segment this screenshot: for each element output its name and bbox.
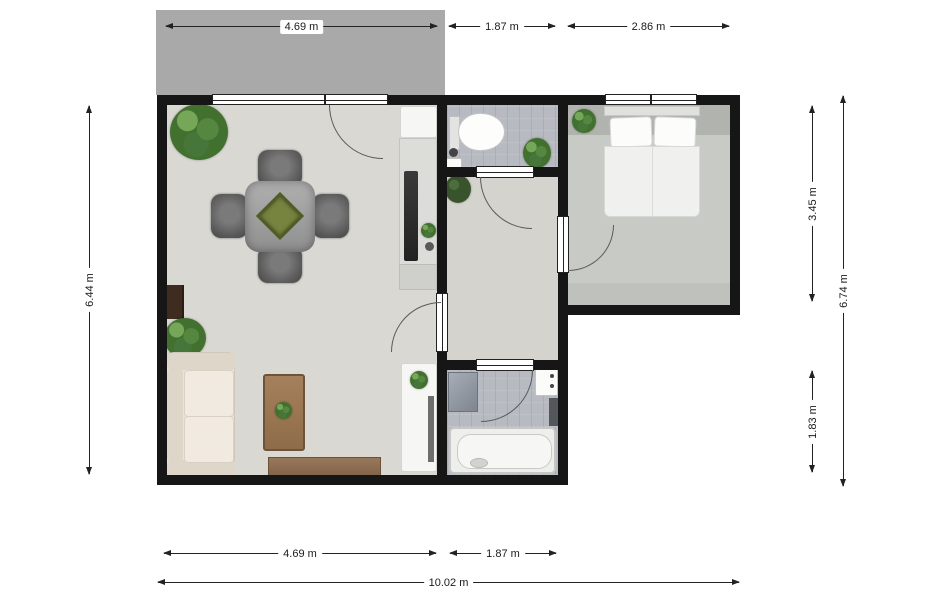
wall-left-exterior [157, 95, 167, 485]
sideboard [268, 457, 381, 476]
arrowhead-icon [157, 579, 165, 585]
pillow [653, 116, 696, 147]
dimension-label: 4.69 m [280, 20, 324, 34]
desk-plant-icon [410, 371, 428, 389]
arrowhead-icon [809, 465, 815, 473]
dimension-hall-width-top: 1.87 m [448, 22, 556, 31]
arrowhead-icon [809, 105, 815, 113]
dimension-label: 6.74 m [837, 269, 851, 313]
arrowhead-icon [809, 370, 815, 378]
toilet-room-plant-icon [523, 138, 551, 168]
desk-dark-strip [428, 396, 434, 462]
dimension-total-height: 6.74 m [839, 95, 848, 487]
bathtub [449, 427, 556, 474]
dimension-terrace-width: 4.69 m [165, 22, 438, 31]
duvet-crease [652, 147, 653, 216]
arrowhead-icon [429, 550, 437, 556]
bathroom-washbasin [535, 368, 558, 396]
dimension-bedroom-width: 2.86 m [567, 22, 730, 31]
arrowhead-icon [840, 95, 846, 103]
sofa-backrest [167, 368, 183, 462]
kitchen-pot-icon [425, 242, 434, 251]
double-bed [604, 106, 700, 217]
arrowhead-icon [165, 23, 173, 29]
pillow [609, 116, 652, 147]
dimension-label: 3.45 m [806, 182, 820, 226]
wall-hall-bedroom-divider [558, 95, 568, 485]
toilet-icon [458, 113, 505, 151]
faucet-dot-icon [550, 374, 554, 378]
bed-duvet [604, 146, 700, 217]
bedroom-floor-bottom-band [568, 283, 730, 305]
terrace-window-door [212, 94, 388, 105]
hallway-plant-icon [445, 175, 471, 203]
arrowhead-icon [449, 550, 457, 556]
wall-bottom-exterior [157, 475, 568, 485]
arrowhead-icon [86, 467, 92, 475]
arrowhead-icon [732, 579, 740, 585]
dimension-living-height: 6.44 m [85, 105, 94, 475]
arrowhead-icon [548, 23, 556, 29]
kitchen-upper-cabinet [400, 106, 437, 138]
floor-drain-icon [449, 148, 458, 157]
wall-bedroom-bottom [558, 305, 740, 315]
dimension-label: 1.87 m [481, 547, 525, 561]
dimension-label: 1.83 m [806, 400, 820, 444]
dimension-hall-width-bottom: 1.87 m [449, 549, 557, 558]
dimension-bedroom-height: 3.45 m [808, 105, 817, 302]
shower-cabinet [448, 372, 478, 412]
arrowhead-icon [809, 294, 815, 302]
bedroom-plant-icon [572, 109, 596, 133]
arrowhead-icon [549, 550, 557, 556]
dimension-label: 1.87 m [480, 20, 524, 34]
cooktop [404, 171, 418, 261]
arrowhead-icon [430, 23, 438, 29]
kitchen-plant-icon [421, 223, 436, 238]
dimension-living-width-bottom: 4.69 m [163, 549, 437, 558]
coffee-table-plant-icon [275, 402, 292, 419]
arrowhead-icon [567, 23, 575, 29]
dimension-label: 10.02 m [424, 576, 474, 590]
arrowhead-icon [448, 23, 456, 29]
dimension-label: 4.69 m [278, 547, 322, 561]
dining-chair-east [312, 194, 349, 238]
arrowhead-icon [163, 550, 171, 556]
wall-living-hall-divider [437, 95, 447, 485]
wall-right-exterior [730, 95, 740, 315]
sofa [166, 352, 235, 476]
faucet-dot-icon [550, 384, 554, 388]
bed-headboard [604, 106, 700, 116]
terrace-door-divider [324, 94, 326, 105]
washing-machine [549, 398, 558, 426]
plant-large-icon [170, 104, 228, 160]
arrowhead-icon [722, 23, 730, 29]
dimension-label: 6.44 m [83, 268, 97, 312]
arrowhead-icon [840, 479, 846, 487]
dimension-total-width: 10.02 m [157, 578, 740, 587]
sofa-cushion [184, 416, 234, 463]
dining-chair-west [211, 194, 248, 238]
bathtub-drain-icon [470, 458, 488, 468]
dimension-bathroom-height: 1.83 m [808, 370, 817, 473]
arrowhead-icon [86, 105, 92, 113]
kitchen-sink-section [399, 264, 437, 290]
dimension-label: 2.86 m [627, 20, 671, 34]
floor-plan-canvas: 4.69 m 1.87 m 2.86 m 6.44 m 3.45 m 6.74 … [0, 0, 930, 599]
bedroom-window-divider [650, 94, 652, 105]
sofa-cushion [184, 370, 234, 417]
